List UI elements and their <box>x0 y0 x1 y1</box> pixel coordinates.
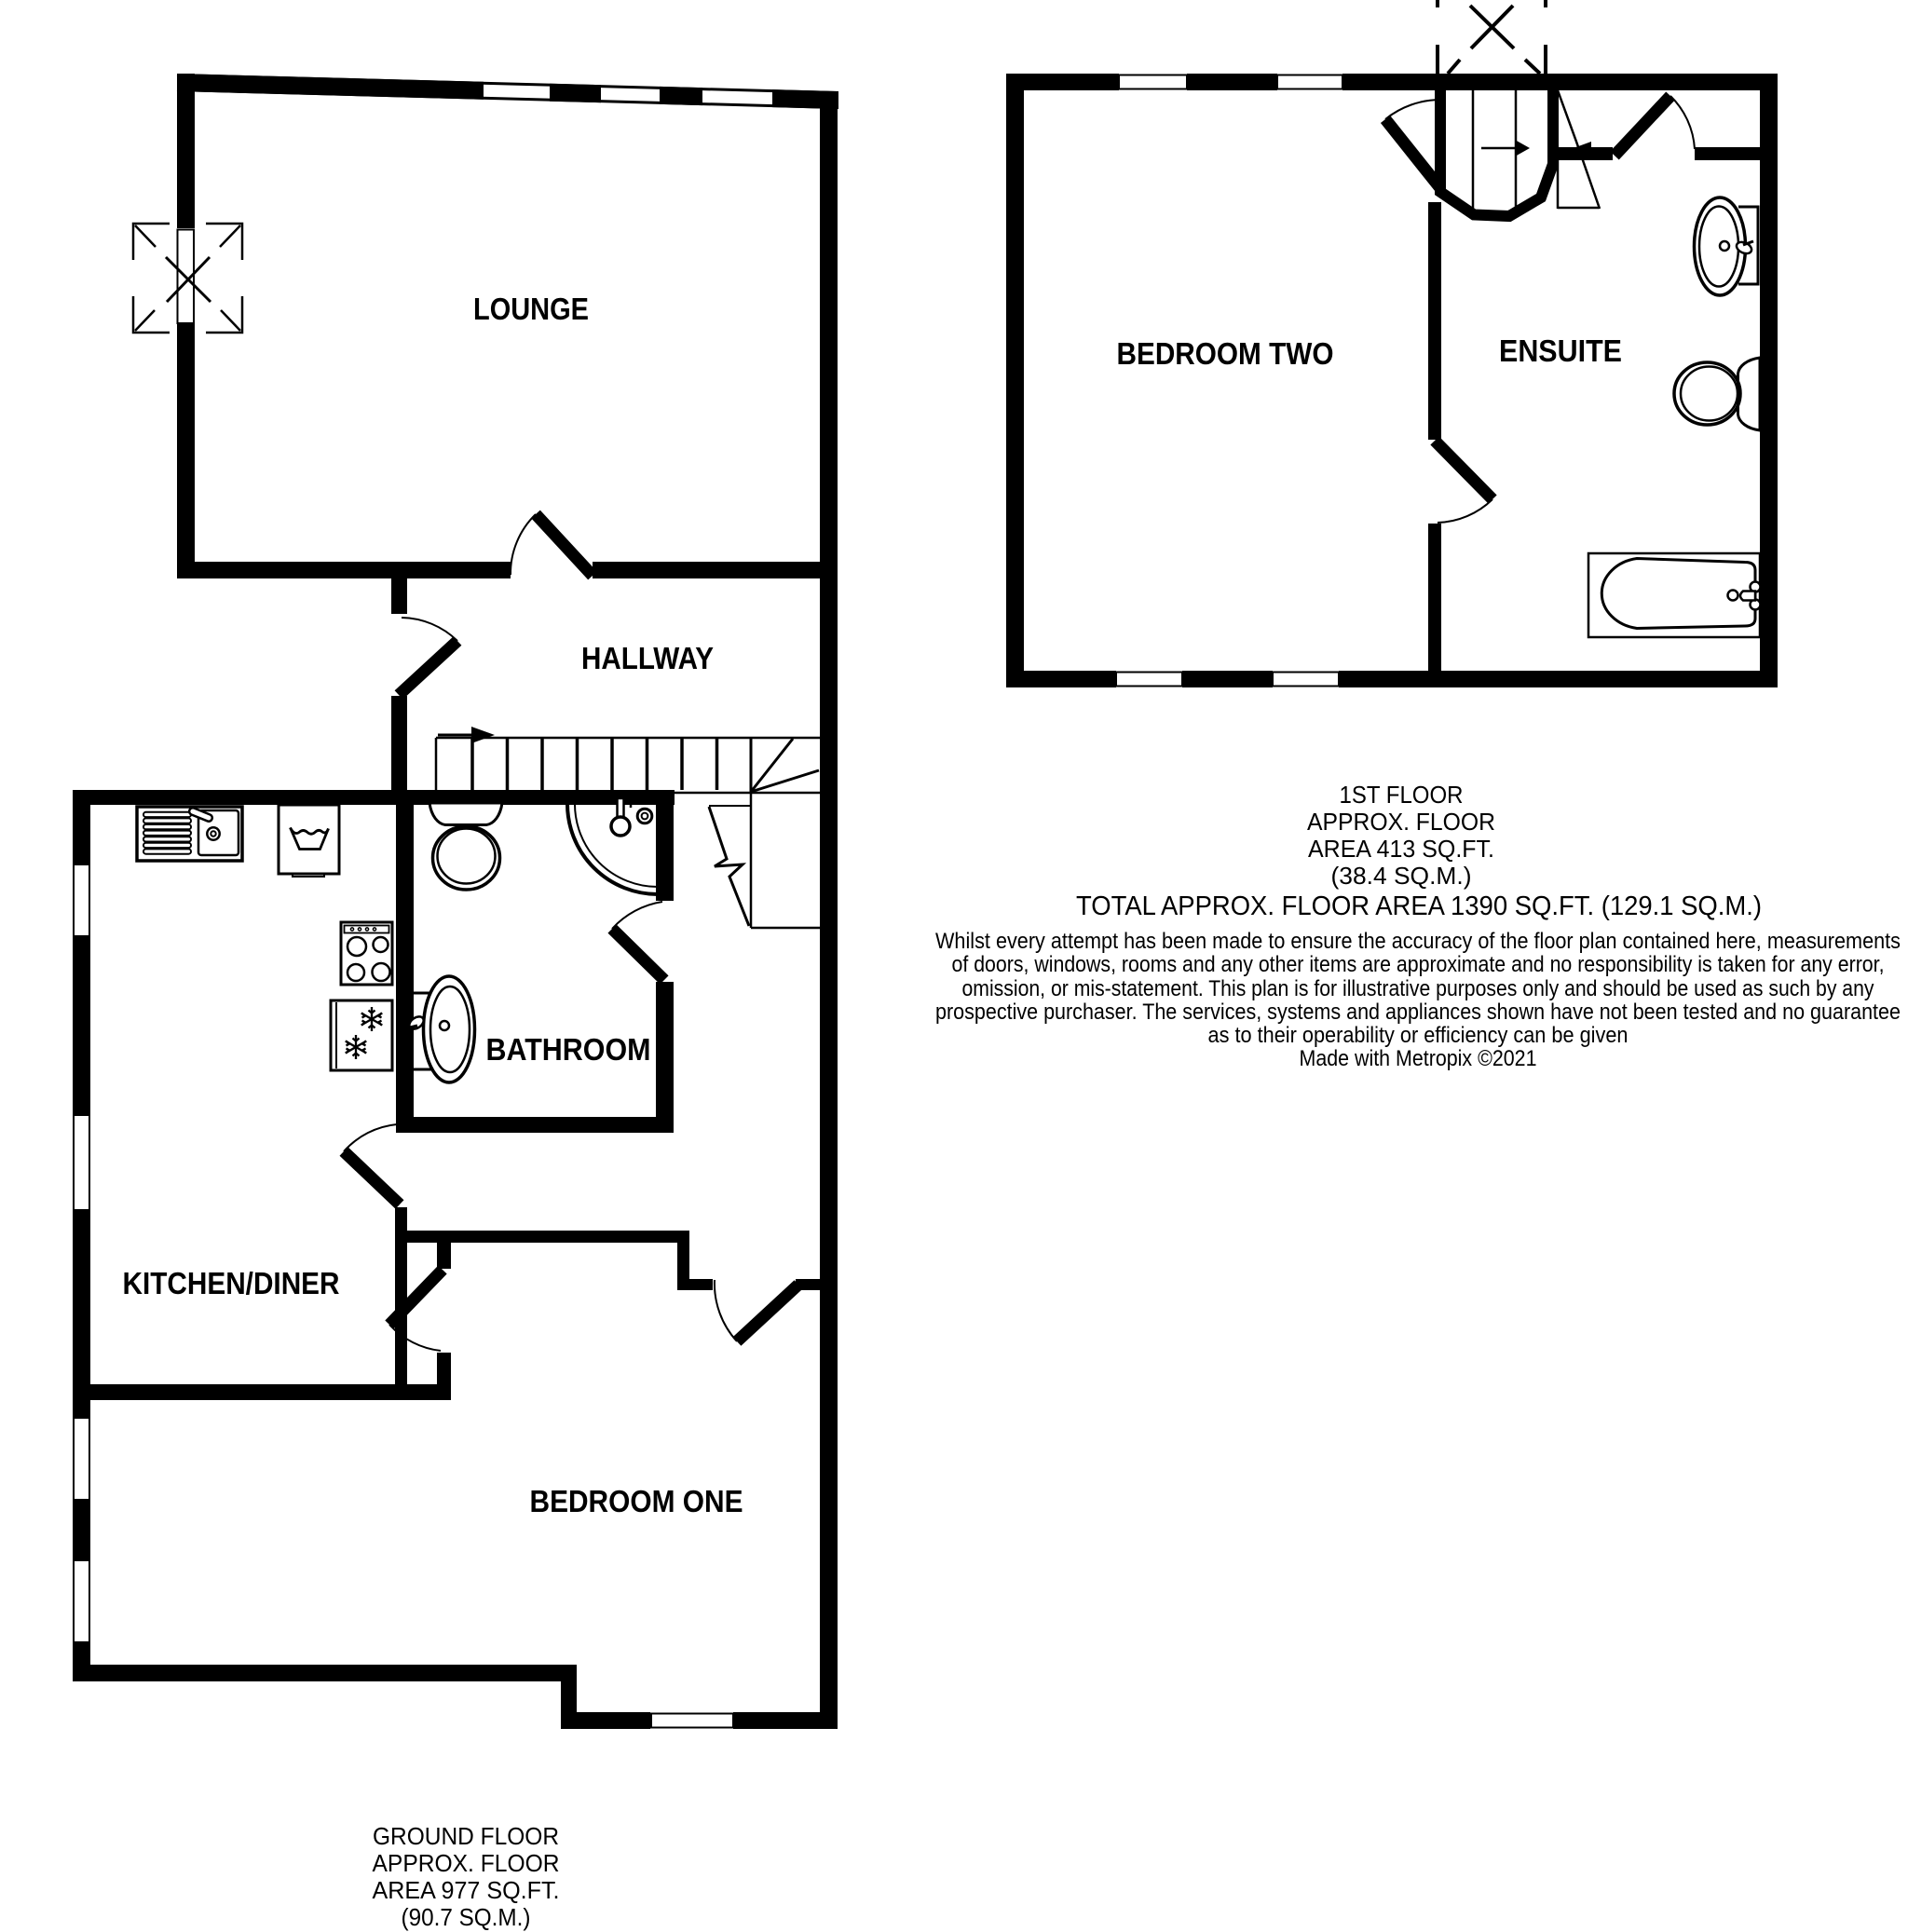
svg-text:APPROX. FLOOR: APPROX. FLOOR <box>373 1849 560 1877</box>
svg-text:prospective purchaser. The ser: prospective purchaser. The services, sys… <box>935 1000 1901 1025</box>
svg-text:LOUNGE: LOUNGE <box>473 292 589 326</box>
svg-text:KITCHEN/DINER: KITCHEN/DINER <box>123 1266 340 1300</box>
svg-text:BEDROOM ONE: BEDROOM ONE <box>530 1484 743 1518</box>
svg-text:(90.7 SQ.M.): (90.7 SQ.M.) <box>402 1903 531 1931</box>
svg-text:Made with Metropix ©2021: Made with Metropix ©2021 <box>1300 1046 1537 1071</box>
svg-text:HALLWAY: HALLWAY <box>581 641 714 675</box>
svg-text:as to their operability or eff: as to their operability or efficiency ca… <box>1208 1023 1629 1048</box>
svg-text:TOTAL APPROX. FLOOR AREA 1390: TOTAL APPROX. FLOOR AREA 1390 SQ.FT. (12… <box>1076 891 1762 921</box>
svg-text:(38.4 SQ.M.): (38.4 SQ.M.) <box>1331 862 1472 890</box>
svg-text:AREA 977 SQ.FT.: AREA 977 SQ.FT. <box>373 1876 560 1904</box>
svg-text:omission, or mis-statement. Th: omission, or mis-statement. This plan is… <box>962 976 1874 1001</box>
svg-text:AREA 413 SQ.FT.: AREA 413 SQ.FT. <box>1308 835 1494 863</box>
svg-text:BATHROOM: BATHROOM <box>486 1032 651 1067</box>
svg-text:of doors, windows, rooms and a: of doors, windows, rooms and any other i… <box>952 952 1885 977</box>
svg-text:ENSUITE: ENSUITE <box>1499 333 1622 368</box>
svg-text:BEDROOM TWO: BEDROOM TWO <box>1117 336 1334 371</box>
svg-text:APPROX. FLOOR: APPROX. FLOOR <box>1307 808 1495 836</box>
svg-text:Whilst every attempt has been: Whilst every attempt has been made to en… <box>935 929 1901 954</box>
svg-text:GROUND FLOOR: GROUND FLOOR <box>373 1822 559 1850</box>
svg-text:1ST FLOOR: 1ST FLOOR <box>1340 781 1464 809</box>
